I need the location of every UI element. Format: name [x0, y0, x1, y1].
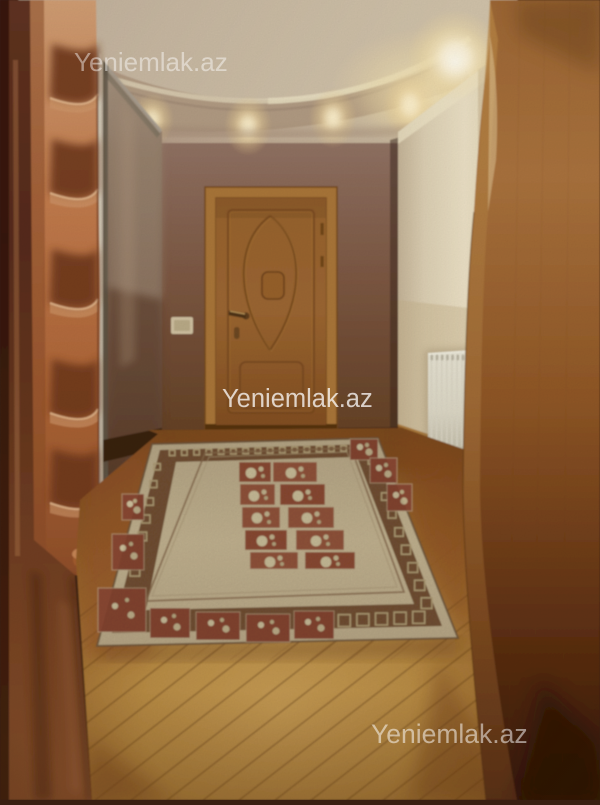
- svg-text:Yeniemlak.az: Yeniemlak.az: [222, 385, 373, 413]
- svg-text:Yeniemlak.az: Yeniemlak.az: [74, 47, 228, 77]
- svg-text:Yeniemlak.az: Yeniemlak.az: [371, 719, 528, 749]
